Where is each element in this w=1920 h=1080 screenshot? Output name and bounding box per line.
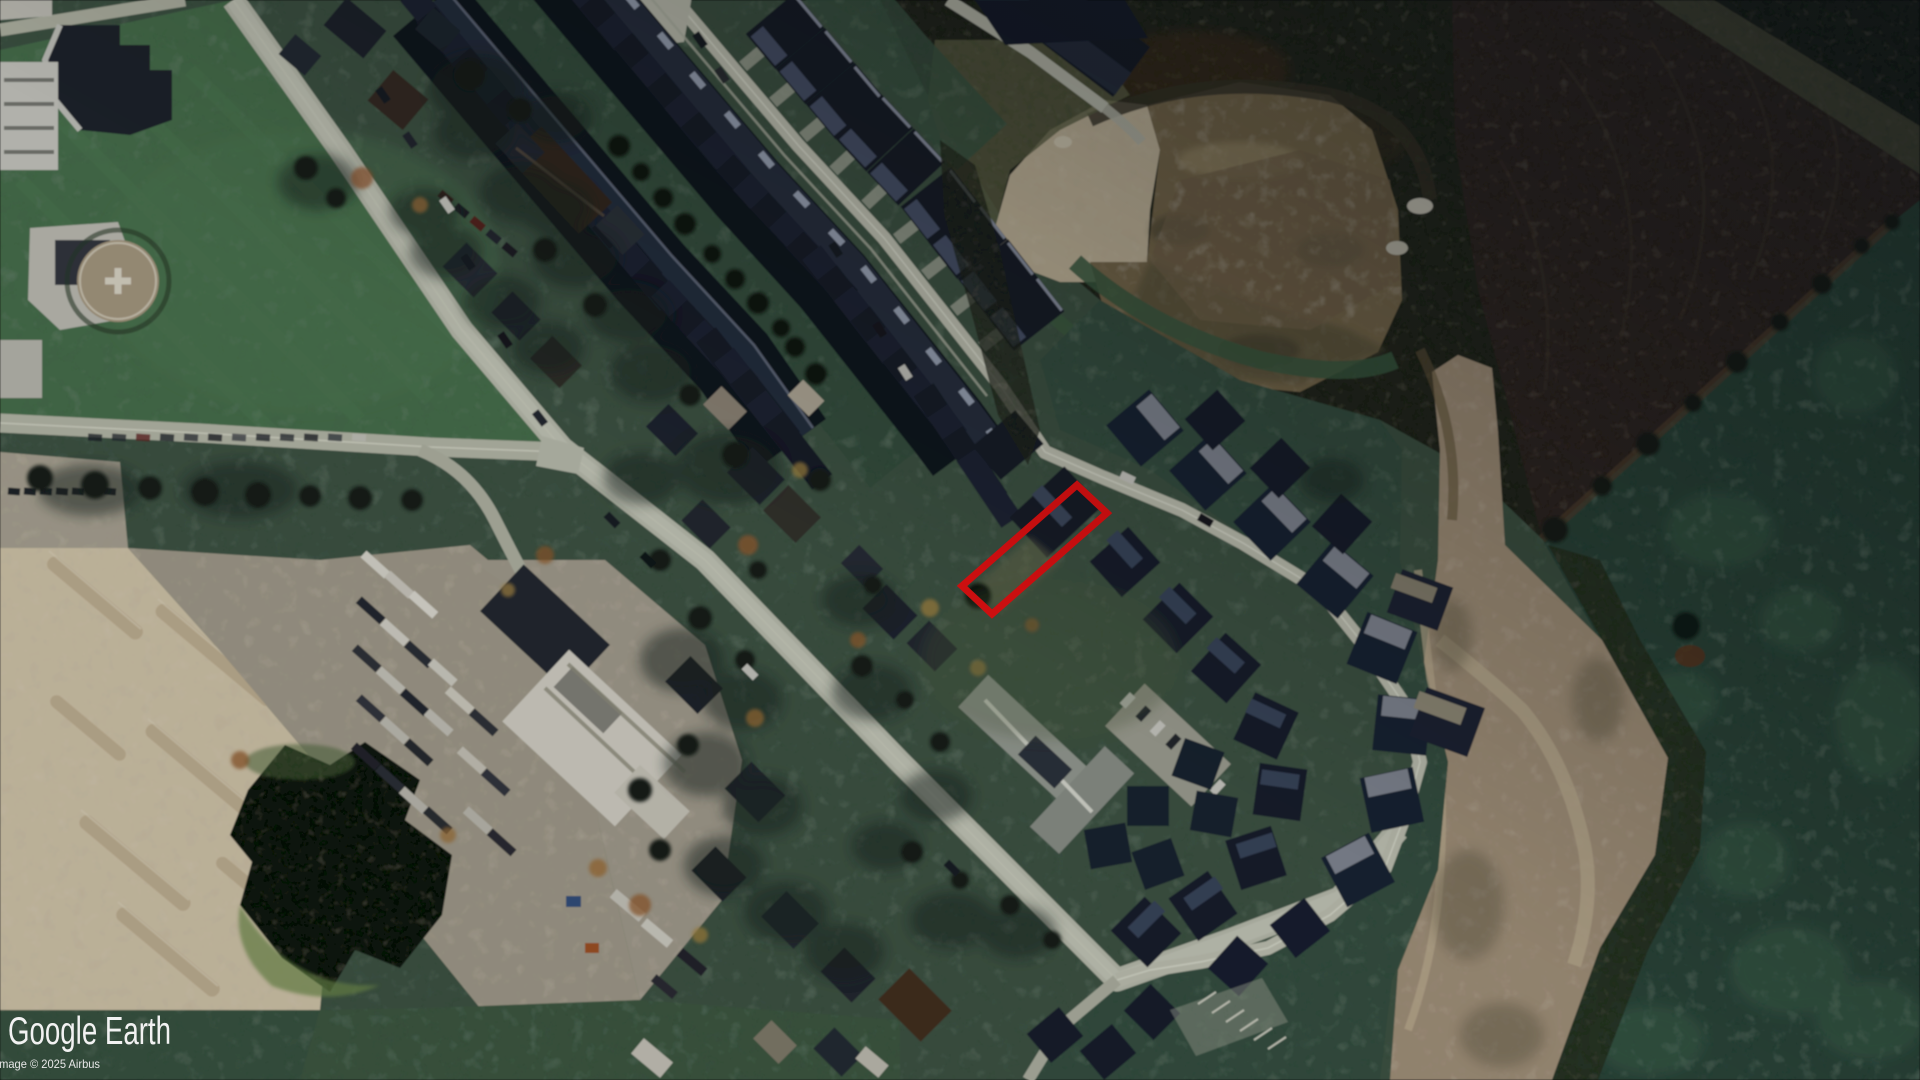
svg-text:Google Earth: Google Earth xyxy=(8,1010,171,1053)
svg-text:Image © 2025 Airbus: Image © 2025 Airbus xyxy=(0,1057,100,1071)
